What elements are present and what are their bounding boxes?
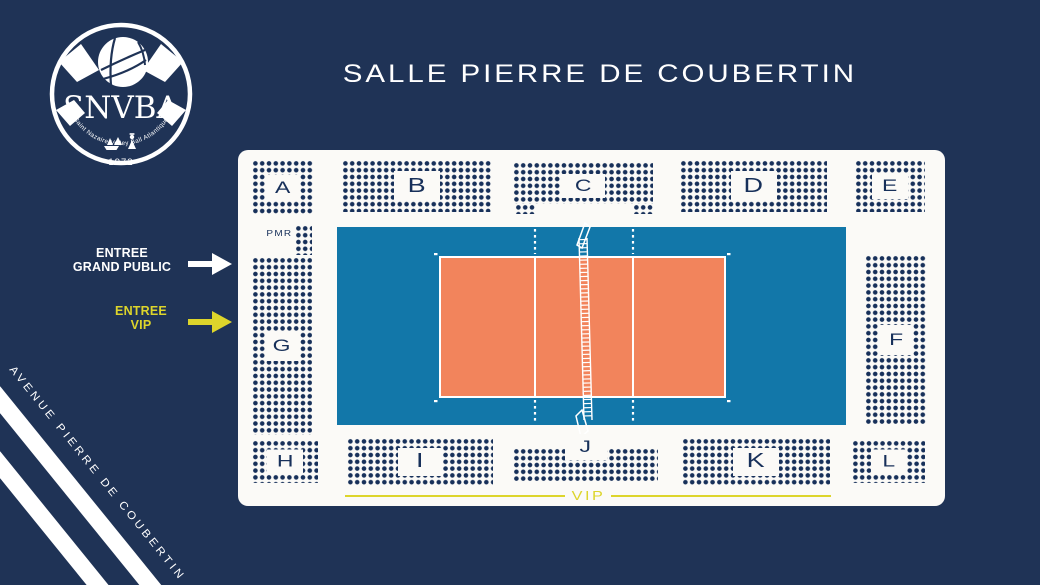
section-h: H xyxy=(252,440,318,483)
vip-rule-left xyxy=(345,495,565,497)
section-c-tab-left xyxy=(515,204,535,214)
section-l-label: L xyxy=(871,449,907,474)
volleyball-icon xyxy=(98,37,148,87)
seating-map-card: A B C D E G F H I J K L PMR VIP xyxy=(238,150,945,506)
section-g: G xyxy=(252,257,312,435)
section-i-label: I xyxy=(398,448,442,476)
pmr-seating-block xyxy=(295,225,312,255)
section-d: D xyxy=(680,160,827,212)
section-c-tab-right xyxy=(633,204,653,214)
section-e-label: E xyxy=(872,173,908,199)
entrance-public-arrow-icon xyxy=(188,251,234,277)
volleyball-court xyxy=(439,256,726,398)
section-a: A xyxy=(252,160,313,215)
entrance-public-label: ENTREE GRAND PUBLIC xyxy=(58,247,186,274)
section-a-label: A xyxy=(266,175,300,201)
section-c: C xyxy=(513,162,653,204)
vip-zone-indicator: VIP xyxy=(345,488,831,503)
section-h-label: H xyxy=(267,449,303,474)
vip-label: VIP xyxy=(575,488,602,503)
section-i: I xyxy=(347,438,493,485)
section-e: E xyxy=(855,160,925,212)
section-b: B xyxy=(342,160,492,212)
section-c-label: C xyxy=(561,174,605,198)
section-l: L xyxy=(852,440,925,483)
entrance-vip-label: ENTREE VIP xyxy=(95,305,187,332)
section-k-label: K xyxy=(733,448,779,476)
entrance-vip-arrow-icon xyxy=(188,309,234,335)
section-k: K xyxy=(682,438,830,485)
section-g-label: G xyxy=(265,331,299,361)
logo-year: 1972 xyxy=(108,157,133,168)
club-logo: SNVBA Saint Nazaire Volley Ball Atlantiq… xyxy=(45,18,197,170)
pmr-label: PMR xyxy=(264,229,294,238)
section-j: J xyxy=(513,448,658,482)
street-label: AVENUE PIERRE DE COUBERTIN xyxy=(7,364,188,583)
page-title: SALLE PIERRE DE COUBERTIN xyxy=(250,60,950,89)
section-j-label: J xyxy=(565,434,607,460)
vip-rule-right xyxy=(611,495,831,497)
section-d-label: D xyxy=(731,171,777,201)
section-b-label: B xyxy=(394,171,440,201)
section-f: F xyxy=(865,255,927,425)
section-f-label: F xyxy=(879,325,913,355)
